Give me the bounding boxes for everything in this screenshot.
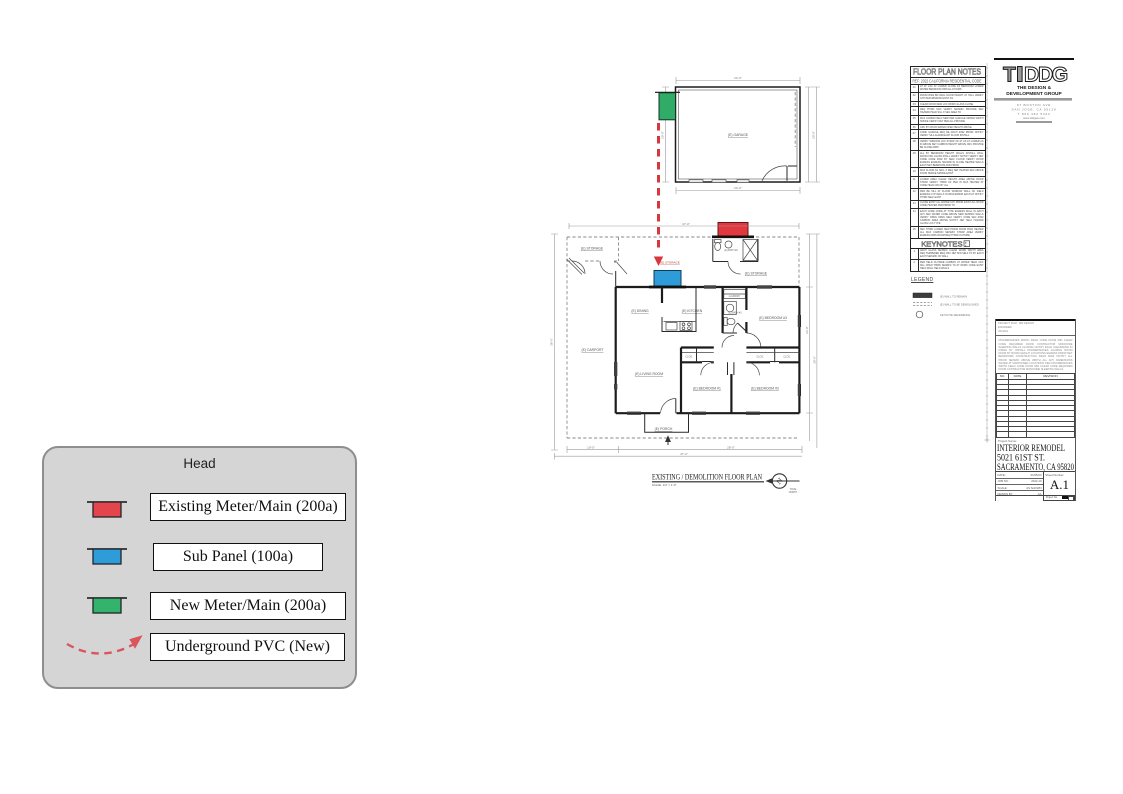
svg-text:INTERIOR REMODEL: INTERIOR REMODEL bbox=[997, 444, 1065, 454]
svg-text:T: T bbox=[1003, 63, 1016, 86]
svg-text:SCALE: 1/4" = 1'-0": SCALE: 1/4" = 1'-0" bbox=[652, 483, 676, 487]
svg-text:CLOS.: CLOS. bbox=[756, 356, 764, 359]
svg-text:38'-6": 38'-6" bbox=[813, 356, 817, 364]
svg-text:(E) STORAGE: (E) STORAGE bbox=[745, 272, 768, 276]
svg-text:(E) KITCHEN: (E) KITCHEN bbox=[682, 309, 703, 313]
svg-text:SAN JOSE, CA 95128: SAN JOSE, CA 95128 bbox=[1011, 107, 1056, 111]
svg-text:(E) WALL TO BE DEMOLISHED: (E) WALL TO BE DEMOLISHED bbox=[940, 303, 979, 307]
svg-text:(E) BEDROOM #2: (E) BEDROOM #2 bbox=[751, 387, 779, 391]
svg-text:47'-0": 47'-0" bbox=[682, 222, 690, 226]
svg-text:(E) BEDROOM #1: (E) BEDROOM #1 bbox=[693, 387, 721, 391]
svg-text:24'-0": 24'-0" bbox=[734, 76, 742, 80]
svg-text:20'-0": 20'-0" bbox=[661, 131, 665, 139]
svg-text:47'-2": 47'-2" bbox=[680, 452, 688, 456]
svg-text:SACRAMENTO, CA 95820: SACRAMENTO, CA 95820 bbox=[997, 463, 1074, 471]
svg-text:CLOS.: CLOS. bbox=[685, 356, 693, 359]
svg-text:38'-6": 38'-6" bbox=[550, 338, 554, 346]
svg-text:EXISTING / DEMOLITION FLOOR PL: EXISTING / DEMOLITION FLOOR PLAN bbox=[652, 472, 763, 482]
svg-text:THE DESIGN &: THE DESIGN & bbox=[1017, 85, 1052, 91]
svg-text:(E) CARPORT: (E) CARPORT bbox=[582, 348, 604, 352]
svg-text:24'-0": 24'-0" bbox=[805, 326, 809, 334]
svg-text:LAUNDRY: LAUNDRY bbox=[729, 295, 741, 298]
svg-text:(E) BATH #1: (E) BATH #1 bbox=[728, 312, 742, 315]
svg-text:NORTH: NORTH bbox=[789, 491, 798, 494]
svg-text:(E) GARAGE: (E) GARAGE bbox=[728, 133, 749, 137]
svg-text:KEYNOTE REFERENCE: KEYNOTE REFERENCE bbox=[940, 313, 970, 317]
svg-text:(E) STORAGE: (E) STORAGE bbox=[660, 261, 679, 265]
svg-text:20'-0": 20'-0" bbox=[812, 131, 816, 139]
svg-text:19'-0": 19'-0" bbox=[587, 445, 595, 449]
svg-text:N: N bbox=[774, 476, 785, 486]
svg-text:(E) PORCH: (E) PORCH bbox=[655, 427, 673, 431]
svg-text:24'-0": 24'-0" bbox=[734, 186, 742, 190]
svg-text:KEYNOTES :: KEYNOTES : bbox=[921, 239, 967, 248]
svg-text:(E) BATH #2: (E) BATH #2 bbox=[724, 249, 738, 252]
svg-text:(E) BEDROOM #3: (E) BEDROOM #3 bbox=[759, 316, 787, 320]
svg-text:CLOS.: CLOS. bbox=[783, 356, 791, 359]
svg-text:(E) LIVING ROOM: (E) LIVING ROOM bbox=[635, 372, 663, 376]
svg-text:DDG: DDG bbox=[1024, 63, 1068, 86]
svg-text:(E) WALL TO REMAIN: (E) WALL TO REMAIN bbox=[940, 295, 967, 299]
svg-text:FLOOR PLAN NOTES: FLOOR PLAN NOTES bbox=[913, 68, 981, 77]
svg-text:28'-0": 28'-0" bbox=[727, 445, 735, 449]
svg-text:DEVELOPMENT GROUP: DEVELOPMENT GROUP bbox=[1006, 91, 1062, 97]
svg-text:5021 61ST ST.: 5021 61ST ST. bbox=[997, 454, 1045, 464]
svg-text:97 BOSTON AVE: 97 BOSTON AVE bbox=[1017, 103, 1051, 107]
svg-text:(E) DINING: (E) DINING bbox=[631, 309, 649, 313]
svg-text:(E) STORAGE: (E) STORAGE bbox=[581, 247, 604, 251]
svg-text:REF: 2022 CALIFORNIA RESIDENTI: REF: 2022 CALIFORNIA RESIDENTIAL CODE bbox=[913, 78, 982, 83]
svg-text:www.tddgsa.com: www.tddgsa.com bbox=[1023, 116, 1045, 120]
